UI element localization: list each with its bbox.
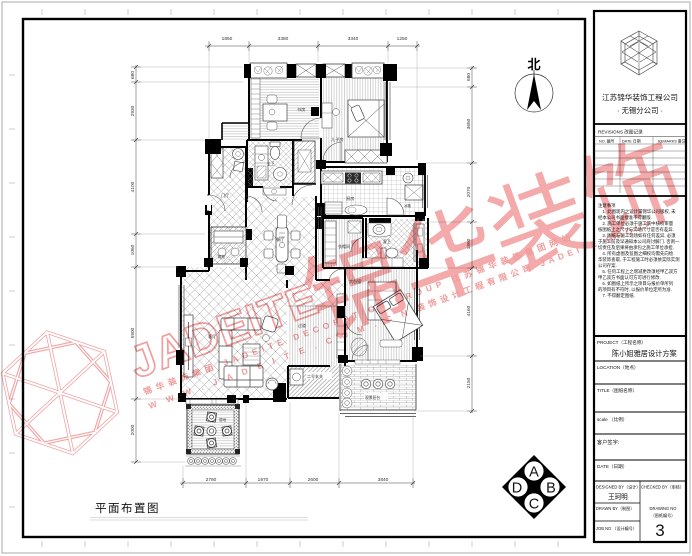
svg-text:LOCATION（地点）: LOCATION（地点） bbox=[597, 364, 639, 371]
svg-text:3: 3 bbox=[655, 521, 664, 540]
svg-text:3840: 3840 bbox=[378, 477, 389, 483]
svg-text:1060: 1060 bbox=[130, 244, 136, 255]
svg-text:1250: 1250 bbox=[397, 36, 408, 42]
svg-text:1970: 1970 bbox=[258, 477, 269, 483]
svg-text:· 无锡分公司 ·: · 无锡分公司 · bbox=[617, 106, 663, 115]
svg-text:A: A bbox=[529, 465, 539, 481]
svg-text:CHECKED BY（审核）: CHECKED BY（审核） bbox=[641, 484, 684, 490]
svg-text:JOB NO （设计编号）: JOB NO （设计编号） bbox=[596, 525, 637, 531]
svg-text:2150: 2150 bbox=[466, 377, 472, 388]
svg-text:2600: 2600 bbox=[308, 477, 319, 483]
svg-text:D: D bbox=[512, 481, 522, 497]
svg-text:主卫: 主卫 bbox=[267, 161, 275, 166]
svg-text:1850: 1850 bbox=[222, 36, 233, 42]
svg-text:TITLE（图纸名称）: TITLE（图纸名称） bbox=[597, 387, 637, 394]
svg-text:湿地: 湿地 bbox=[219, 417, 227, 422]
svg-text:2780: 2780 bbox=[206, 477, 217, 483]
svg-text:5. 任何工程上之增减更改须经甲乙双方: 5. 任何工程上之增减更改须经甲乙双方 bbox=[598, 268, 678, 275]
svg-text:平面布置图: 平面布置图 bbox=[95, 502, 160, 515]
svg-text:3650: 3650 bbox=[466, 118, 472, 129]
svg-text:scale （比例）: scale （比例） bbox=[597, 416, 627, 423]
svg-text:4100: 4100 bbox=[130, 181, 136, 192]
svg-text:B: B bbox=[546, 481, 556, 497]
svg-text:观景阳台: 观景阳台 bbox=[365, 395, 380, 400]
svg-text:陈小姐雅居设计方案: 陈小姐雅居设计方案 bbox=[612, 349, 677, 358]
svg-text:680: 680 bbox=[466, 73, 472, 81]
svg-text:6. 如图纸上所示之项目与报价单所列: 6. 如图纸上所示之项目与报价单所列 bbox=[598, 280, 674, 287]
svg-text:王珂明: 王珂明 bbox=[608, 493, 628, 501]
svg-text:PROJECT（工程名称）: PROJECT（工程名称） bbox=[597, 339, 646, 346]
svg-text:公司存案.: 公司存案. bbox=[598, 262, 617, 269]
svg-text:书房: 书房 bbox=[297, 106, 305, 113]
svg-text:儿子房: 儿子房 bbox=[331, 136, 344, 143]
svg-text:的项目有不符时, 以报价单位定所为准.: 的项目有不符时, 以报价单位定所为准. bbox=[598, 286, 672, 293]
svg-text:7. 不得翻定图纸.: 7. 不得翻定图纸. bbox=[598, 292, 635, 299]
svg-text:3340: 3340 bbox=[348, 36, 359, 42]
svg-text:华装饰查取, 于工程施工时必须依实际实测: 华装饰查取, 于工程施工时必须依实际实测 bbox=[598, 256, 680, 263]
svg-text:二号玄关: 二号玄关 bbox=[307, 373, 323, 379]
svg-text:门厅: 门厅 bbox=[221, 192, 229, 199]
svg-text:江苏锦华装饰工程公司: 江苏锦华装饰工程公司 bbox=[602, 92, 678, 102]
svg-text:3380: 3380 bbox=[278, 36, 289, 42]
svg-text:客户签字:: 客户签字: bbox=[597, 438, 619, 446]
svg-text:餐厅: 餐厅 bbox=[276, 236, 284, 243]
svg-text:2930: 2930 bbox=[130, 105, 136, 116]
svg-text:2000: 2000 bbox=[130, 424, 136, 435]
svg-text:厨房: 厨房 bbox=[346, 195, 354, 202]
svg-text:C: C bbox=[529, 497, 539, 513]
svg-text:DESIGNED BY（设计）: DESIGNED BY（设计） bbox=[596, 484, 640, 490]
svg-text:冰箱: 冰箱 bbox=[404, 203, 411, 208]
svg-text:鞋柜: 鞋柜 bbox=[218, 254, 226, 259]
svg-text:DRAWING NO: DRAWING NO bbox=[650, 506, 677, 511]
svg-text:DRAWN BY（制图）: DRAWN BY（制图） bbox=[596, 505, 634, 511]
svg-text:（图纸编号）: （图纸编号） bbox=[651, 512, 676, 518]
svg-text:甲乙双方书面认可方可进行修改.: 甲乙双方书面认可方可进行修改. bbox=[598, 274, 661, 281]
svg-text:北: 北 bbox=[527, 57, 540, 72]
svg-text:早餐厅: 早餐厅 bbox=[348, 174, 359, 179]
svg-text:680: 680 bbox=[130, 71, 136, 79]
